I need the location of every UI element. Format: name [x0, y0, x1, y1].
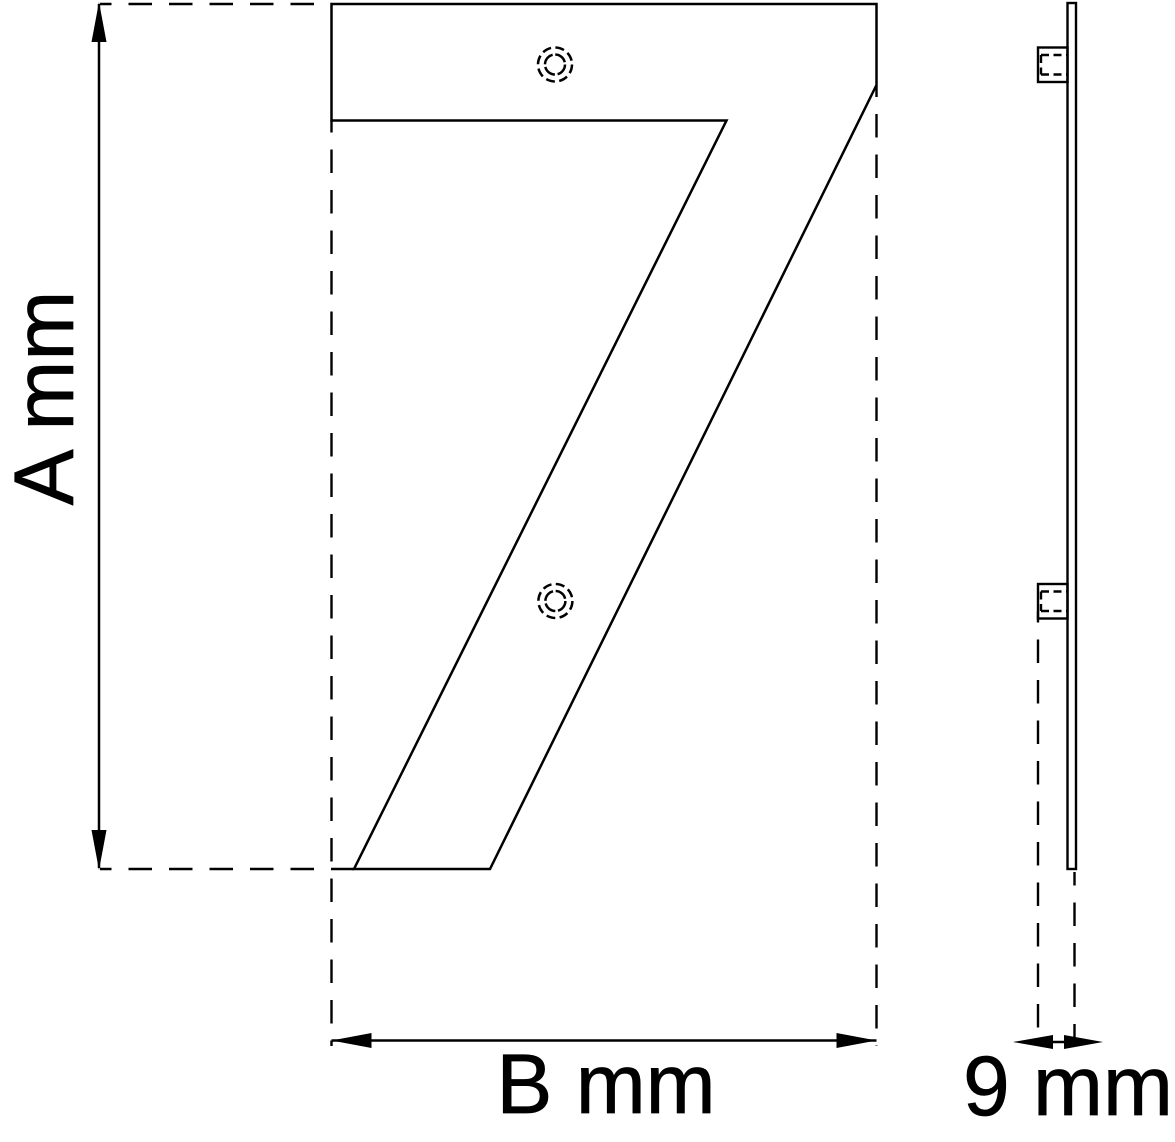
- svg-text:B mm: B mm: [496, 1037, 715, 1131]
- svg-text:A mm: A mm: [0, 291, 91, 506]
- svg-text:9 mm: 9 mm: [963, 1039, 1173, 1133]
